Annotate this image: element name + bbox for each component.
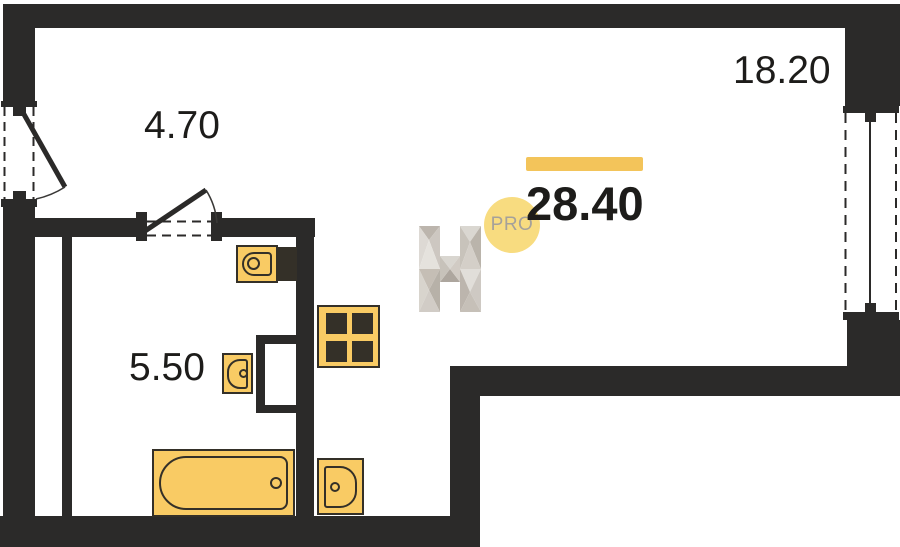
toilet-fixture — [236, 245, 278, 283]
stove-fixture — [317, 305, 380, 368]
bathtub-drain — [270, 477, 282, 489]
floorplan-canvas: 4.70 18.20 5.50 28.40 PRO — [0, 0, 900, 547]
room-area-label-bathroom: 5.50 — [129, 348, 205, 387]
bathroom-door-leaf — [145, 190, 206, 231]
stove-burner — [352, 313, 373, 334]
wash-basin-drain — [239, 369, 248, 378]
toilet-tank — [278, 247, 297, 281]
total-area-underline — [526, 157, 643, 171]
toilet-drain — [247, 257, 260, 270]
bathtub-basin — [159, 456, 288, 510]
bathroom-door-swing-arc — [206, 190, 217, 223]
bathtub-fixture — [152, 449, 295, 517]
kitchen-sink-fixture — [317, 458, 364, 515]
total-area-label: 28.40 — [526, 180, 644, 227]
kitchen-sink-drain — [330, 482, 340, 492]
entrance-door-swing-arc — [36, 187, 65, 199]
stove-burner — [326, 341, 347, 362]
kitchen-sink-bowl — [324, 466, 357, 508]
room-area-label-hall: 4.70 — [144, 106, 220, 145]
stove-burner — [326, 313, 347, 334]
entrance-door-leaf — [21, 109, 65, 187]
wash-basin-fixture — [222, 353, 253, 394]
room-area-label-living: 18.20 — [733, 51, 831, 90]
stove-burner — [352, 341, 373, 362]
